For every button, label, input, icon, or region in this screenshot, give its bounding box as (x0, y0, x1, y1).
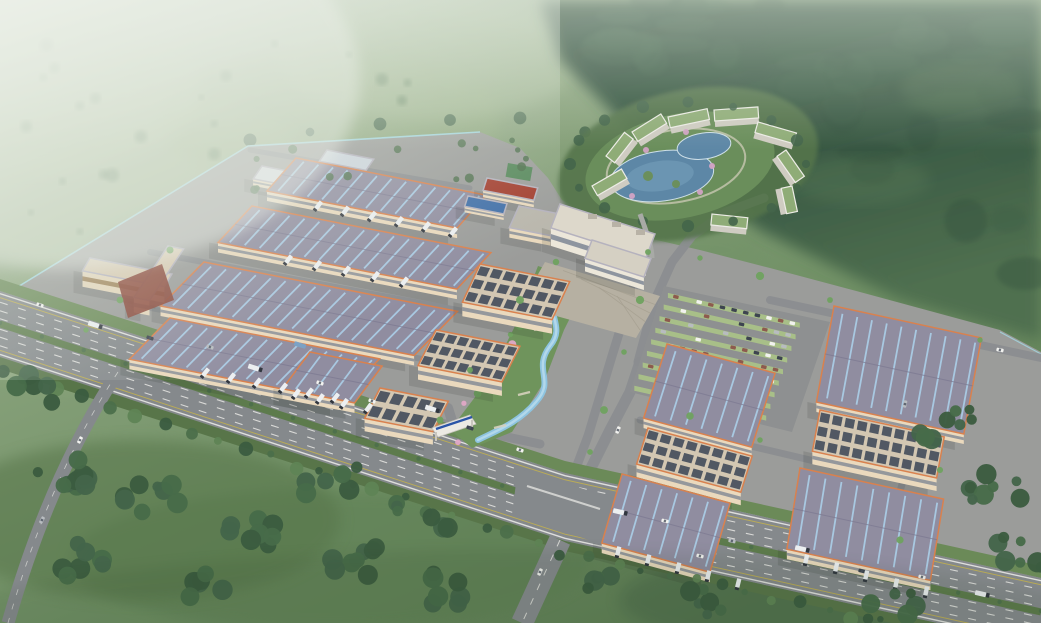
solar-panel (891, 442, 902, 453)
median-shrub (500, 483, 504, 487)
resort-tree (728, 217, 738, 227)
median-shrub (458, 470, 462, 474)
tree-cluster (422, 508, 440, 526)
solar-panel (839, 445, 850, 456)
tree-cluster (220, 522, 239, 541)
solar-panel (827, 443, 838, 454)
rooftop-unit (636, 230, 645, 235)
solar-panel (819, 413, 830, 424)
solar-panel (869, 423, 880, 434)
tree-cluster (161, 475, 181, 495)
aerial-rendering (0, 0, 1041, 623)
median-shrub (291, 416, 295, 420)
tree-cluster (966, 414, 976, 424)
median-shrub (249, 402, 253, 406)
solar-panel (842, 432, 853, 443)
blossom-tree (455, 439, 461, 445)
solar-panel (817, 426, 828, 437)
tree-cluster (115, 490, 135, 510)
median-shrub (333, 429, 337, 433)
tree-cluster (1011, 489, 1030, 508)
tree-cluster (94, 556, 111, 573)
street-tree (587, 449, 593, 455)
tree-cluster (69, 451, 88, 470)
solar-panel (814, 440, 825, 451)
tree-cluster (1012, 476, 1022, 486)
roadside-tree (483, 523, 493, 533)
solar-panel (894, 429, 905, 440)
resort-tree (682, 220, 694, 232)
rendering-canvas (0, 0, 1041, 623)
solar-panel (914, 462, 925, 473)
rooftop-unit (588, 214, 597, 219)
tree-cluster (134, 504, 151, 521)
solar-panel (926, 464, 937, 475)
tree-cluster (954, 419, 965, 430)
tree-cluster (263, 528, 281, 546)
roadside-tree (315, 467, 323, 475)
tree-cluster (241, 530, 261, 550)
forest-texture (989, 206, 1026, 233)
solar-panel (864, 451, 875, 462)
roadside-tree (214, 437, 222, 445)
solar-panel (904, 445, 915, 456)
street-tree (645, 249, 651, 255)
tree-cluster (75, 475, 95, 495)
street-tree (977, 337, 982, 342)
solar-panel (829, 429, 840, 440)
resort-tree (802, 160, 810, 168)
blossom-tree (629, 193, 635, 199)
roadside-tree (159, 418, 172, 431)
tree-cluster (317, 473, 334, 490)
street-tree (621, 349, 627, 355)
tree-cluster (167, 492, 188, 513)
roadside-tree (186, 428, 198, 440)
tree-cluster (392, 506, 402, 516)
resort-tree (575, 184, 583, 192)
tree-cluster (950, 405, 961, 416)
solar-panel (857, 421, 868, 432)
pond-island (643, 171, 653, 181)
median-shrub (749, 545, 753, 549)
tree-cluster (438, 518, 458, 538)
street-tree (896, 536, 903, 543)
blossom-tree (461, 401, 466, 406)
forest-texture (944, 199, 987, 243)
street-tree (600, 406, 608, 414)
tree-cluster (995, 551, 1015, 571)
solar-panel (877, 453, 888, 464)
roadside-tree (103, 401, 116, 414)
solar-panel (832, 415, 843, 426)
blossom-tree (697, 189, 703, 195)
roadside-tree (290, 462, 303, 475)
tree-cluster (976, 464, 996, 484)
tree-cluster (1015, 557, 1025, 567)
solar-panel (844, 418, 855, 429)
tree-cluster (1016, 536, 1026, 546)
roadside-tree (75, 389, 89, 403)
street-tree (437, 417, 444, 424)
tree-cluster (967, 494, 977, 504)
tree-cluster (33, 467, 43, 477)
solar-panel (879, 440, 890, 451)
street-tree (686, 412, 694, 420)
tree-cluster (965, 405, 975, 415)
resort-tree (793, 184, 800, 191)
roadside-tree (448, 512, 455, 519)
roadside-tree (535, 539, 543, 547)
tree-cluster (916, 428, 935, 447)
solar-panel (916, 448, 927, 459)
tree-cluster (351, 462, 362, 473)
solar-panel (882, 426, 893, 437)
street-tree (827, 297, 833, 303)
tree-cluster (296, 483, 316, 503)
roadside-tree (500, 525, 514, 539)
street-tree (697, 255, 702, 260)
tree-cluster (56, 477, 72, 493)
tree-cluster (76, 543, 95, 562)
resort-tree (767, 203, 777, 213)
solar-panel (929, 450, 940, 461)
roadside-tree (365, 481, 380, 496)
blossom-tree (709, 163, 715, 169)
roadside-tree (127, 409, 142, 424)
rooftop-unit (612, 222, 621, 227)
roadside-tree (267, 450, 274, 457)
median-shrub (416, 456, 420, 460)
median-shrub (374, 443, 378, 447)
tree-cluster (333, 465, 351, 483)
solar-panel (867, 437, 878, 448)
street-tree (636, 296, 644, 304)
roadside-tree (239, 442, 253, 456)
pond-island (672, 180, 680, 188)
resort-tree (564, 158, 576, 170)
street-tree (756, 272, 764, 280)
solar-panel (901, 459, 912, 470)
solar-panel (889, 456, 900, 467)
tree-cluster (130, 475, 149, 494)
street-tree (937, 467, 943, 473)
tree-cluster (998, 532, 1009, 543)
street-tree (757, 437, 763, 443)
tree-cluster (43, 394, 60, 411)
resort-tree (599, 202, 610, 213)
solar-panel (854, 434, 865, 445)
solar-panel (852, 448, 863, 459)
